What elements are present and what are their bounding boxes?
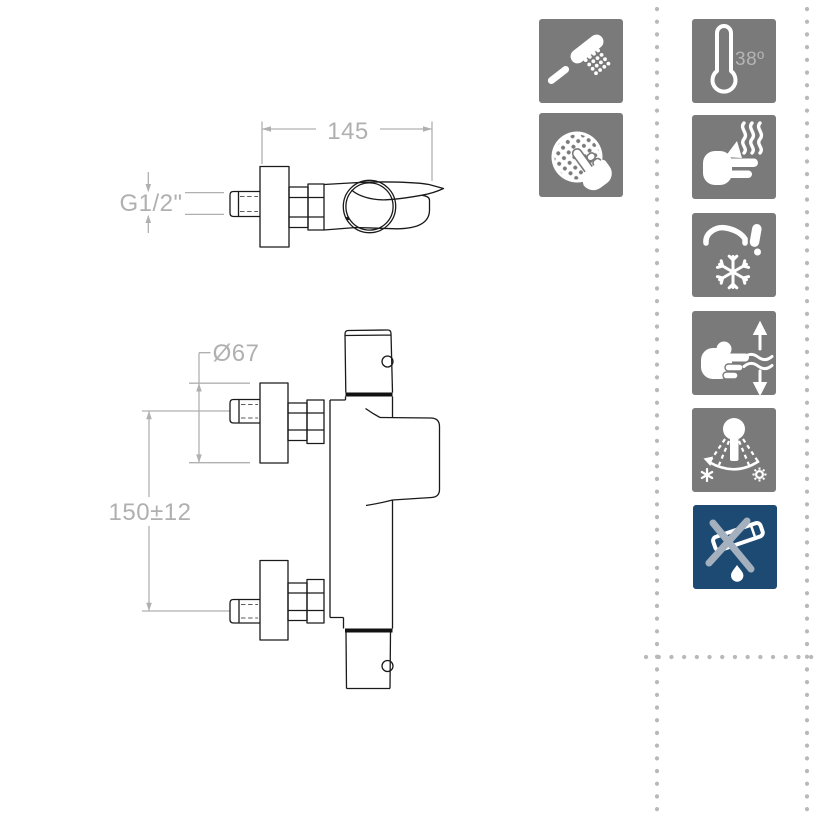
top-view — [230, 167, 444, 248]
lever-handle — [350, 182, 444, 200]
wall-flange — [260, 167, 289, 248]
swivel-spray-icon — [692, 408, 776, 492]
temperature-knob-outer — [343, 180, 395, 232]
top-inlet-nipple — [239, 400, 260, 424]
bottom-knob-screw — [382, 661, 393, 672]
feature-thermostatic-38: 38º — [692, 19, 776, 103]
flow-knob-front — [346, 633, 391, 689]
body-bottom — [324, 200, 430, 230]
no-drip-crossed-icon — [693, 505, 777, 589]
anti-scald-hand-heat-icon — [692, 115, 776, 199]
body-shoulder-top — [324, 183, 350, 185]
inlet-nipple-cap — [230, 192, 239, 217]
top-union-block — [288, 403, 307, 441]
bottom-union-nut — [307, 580, 324, 624]
union-nut — [308, 184, 324, 230]
feature-no-drip — [693, 505, 777, 589]
thread-hidden-lines — [240, 197, 258, 212]
dim-diameter-label: Ø67 — [186, 342, 286, 366]
top-union-nut — [307, 400, 324, 444]
knob-button — [346, 217, 350, 221]
hand — [703, 141, 758, 185]
temp-38-label: 38º — [735, 49, 765, 71]
top-flange — [260, 383, 288, 463]
feature-anti-scald — [692, 115, 776, 199]
hand — [701, 342, 749, 380]
dim-distance-label: 150±12 — [90, 501, 210, 525]
temperature-knob-inner — [346, 183, 393, 230]
hand-flow-adjust-icon — [692, 311, 776, 395]
spec-sheet: 145 G1/2" Ø67 150±12 — [0, 0, 815, 815]
hot-symbol — [753, 468, 767, 482]
cold-symbol — [702, 469, 712, 481]
feature-cold-water — [692, 213, 776, 297]
inlet-nipple — [239, 192, 261, 217]
water-drop — [731, 565, 743, 582]
body-bottom-step — [330, 618, 344, 629]
faucet-frost-cold-icon — [692, 213, 776, 297]
swivel-arc — [709, 461, 759, 469]
dim-width-label: 145 — [300, 120, 396, 144]
water-waves — [744, 354, 772, 368]
bottom-flange — [260, 561, 288, 641]
top-knob-ring — [346, 393, 393, 397]
body-bulge — [380, 418, 440, 501]
dim-d67-line — [199, 353, 211, 463]
shower-grip — [546, 65, 570, 86]
snowflake — [717, 256, 748, 288]
feature-swivel-spray — [692, 408, 776, 492]
shower-stem — [730, 437, 739, 461]
temperature-knob-front — [345, 330, 393, 393]
feature-hand-shower — [539, 19, 623, 103]
faucet-drop — [754, 249, 761, 256]
steam-waves — [743, 123, 762, 153]
bulge-break-lines — [366, 409, 393, 506]
faucet-body — [749, 223, 762, 247]
body-left-edge — [330, 397, 346, 618]
bottom-union-block — [288, 583, 307, 621]
feature-touch-spray — [539, 113, 623, 197]
hand-shower-icon — [539, 19, 623, 103]
union-block — [289, 187, 308, 228]
front-view — [230, 330, 440, 689]
touch-spray-clean-icon — [539, 113, 623, 197]
faucet-spout — [706, 228, 745, 243]
feature-flow-adjust — [692, 311, 776, 395]
dim-thread-label: G1/2" — [101, 192, 201, 216]
bottom-knob-ring — [345, 629, 393, 633]
bottom-inlet-nipple — [239, 600, 260, 624]
thermometer — [713, 26, 736, 92]
shower-head — [723, 418, 745, 440]
